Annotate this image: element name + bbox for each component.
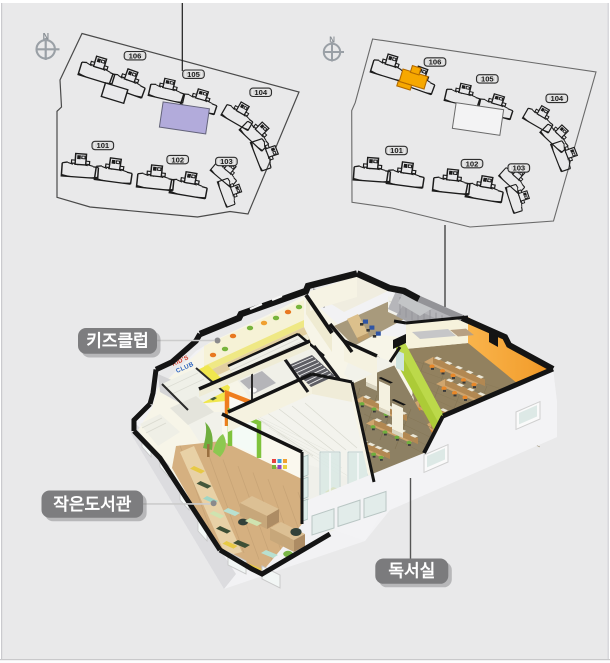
svg-text:102: 102: [466, 159, 479, 168]
svg-text:독서실: 독서실: [388, 562, 435, 581]
svg-text:106: 106: [129, 51, 142, 60]
svg-text:106: 106: [429, 58, 442, 67]
svg-text:104: 104: [550, 94, 563, 103]
svg-text:키즈클럽: 키즈클럽: [86, 332, 149, 351]
svg-text:N: N: [43, 32, 50, 42]
svg-text:101: 101: [96, 141, 109, 150]
svg-text:101: 101: [390, 146, 403, 155]
svg-text:102: 102: [171, 155, 184, 164]
svg-text:103: 103: [512, 164, 525, 173]
svg-text:103: 103: [220, 157, 233, 166]
svg-text:104: 104: [254, 88, 267, 97]
svg-text:N: N: [329, 36, 335, 45]
svg-text:105: 105: [481, 75, 494, 84]
svg-text:105: 105: [187, 70, 200, 79]
svg-text:작은도서관: 작은도서관: [53, 495, 132, 514]
